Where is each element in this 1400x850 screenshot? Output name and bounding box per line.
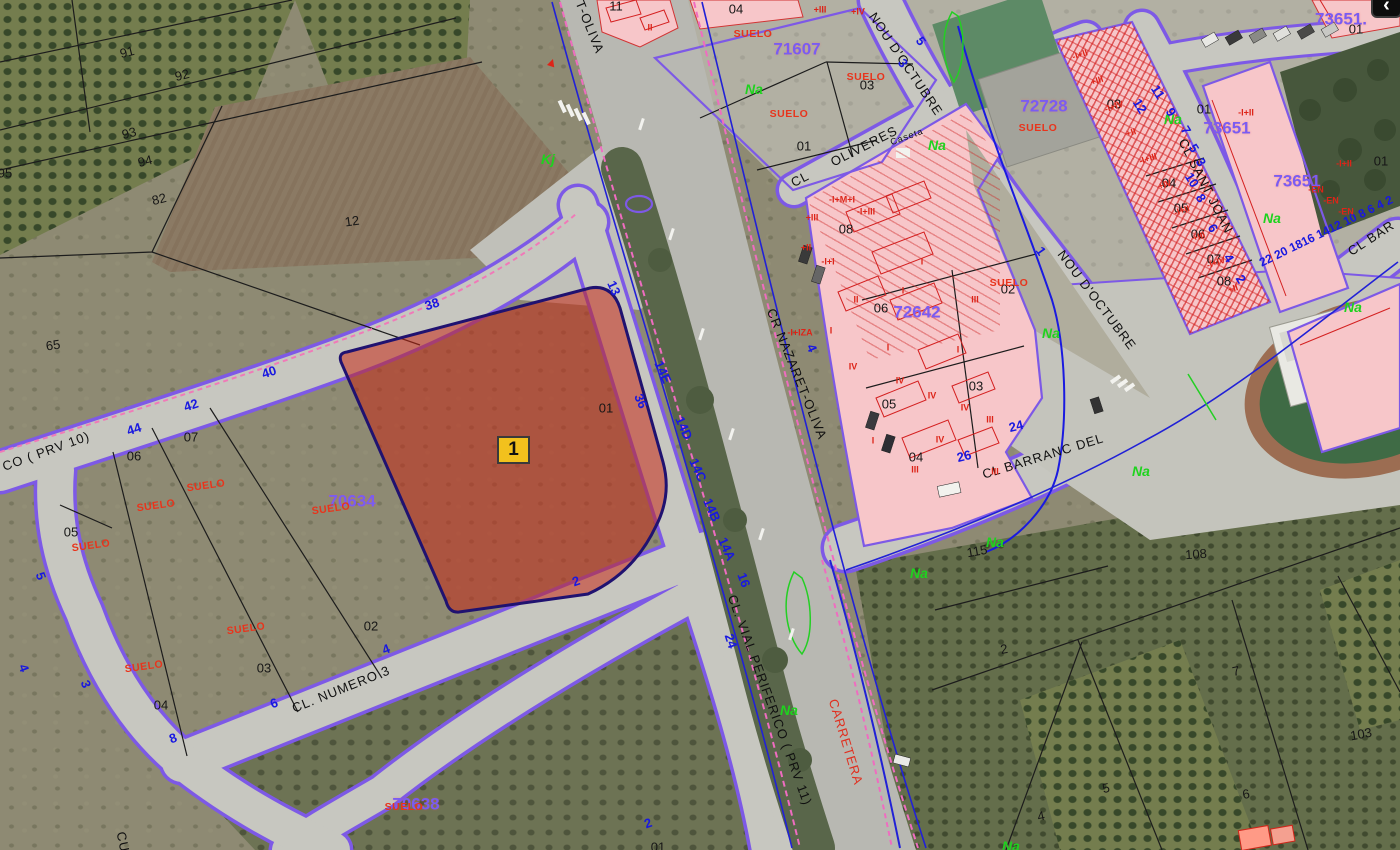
- parcel-label: 04: [1162, 177, 1176, 190]
- na-label: Na: [1344, 300, 1362, 314]
- street-label: CL: [789, 169, 811, 189]
- mark-label: +IV: [1157, 179, 1173, 192]
- zone-label: 70638: [392, 796, 439, 813]
- parcel-label: 03: [969, 380, 983, 393]
- house-label: 2: [1234, 272, 1249, 285]
- parcel-label: 06: [127, 450, 141, 463]
- parcel-label: 65: [45, 338, 61, 353]
- parcel-label: 01: [1197, 103, 1211, 116]
- house-label: 22 20 1816 1412 10 8 6 4 2: [1257, 193, 1394, 268]
- na-label: Na: [910, 566, 928, 580]
- parcel-label: 4: [1036, 809, 1046, 823]
- zone-label: 72642: [893, 304, 940, 321]
- parcel-label: 05: [64, 526, 78, 539]
- mark-label: I: [872, 437, 875, 446]
- street-label: CL SANT JOAN: [1176, 137, 1235, 236]
- suelo-label: SUELO: [1019, 123, 1058, 134]
- mark-label: -I+IV: [1103, 100, 1124, 115]
- street-label: CARRETERA: [827, 697, 866, 786]
- house-label: 5: [34, 570, 49, 581]
- mark-label: I: [887, 344, 890, 353]
- na-label: Na: [745, 82, 763, 96]
- parcel-label: 108: [1185, 547, 1208, 561]
- parcel-label: 93: [120, 125, 137, 141]
- mark-label: -I+IZA: [787, 329, 812, 338]
- zone-label: 70634: [328, 493, 375, 510]
- house-label: 14E: [652, 359, 673, 385]
- house-label: 10: [1183, 170, 1202, 189]
- zone-label: 72728: [1020, 98, 1067, 115]
- suelo-label: SUELO: [71, 538, 111, 554]
- mark-label: I: [957, 346, 960, 355]
- house-label: 4: [805, 342, 820, 354]
- house-label: 3: [896, 56, 911, 69]
- mark-label: -I+III: [1138, 152, 1158, 166]
- na-label: Na: [1263, 211, 1281, 225]
- mark-label: III: [986, 416, 994, 425]
- house-label: 4: [1222, 251, 1237, 264]
- parcel-label: 92: [173, 67, 190, 83]
- house-label: 9: [1164, 105, 1179, 118]
- mark-label: -I+II: [1071, 48, 1089, 61]
- parcel-label: 82: [150, 191, 167, 207]
- house-label: 36: [632, 392, 650, 411]
- zone-label: 73651.: [1315, 11, 1367, 28]
- house-label: 8: [167, 731, 178, 746]
- house-label: 12: [1131, 96, 1150, 115]
- suelo-label: SUELO: [136, 498, 176, 514]
- house-label: 5: [1187, 141, 1202, 154]
- street-label: CL. NUMERO 3: [290, 663, 392, 714]
- parcel-label: 04: [909, 451, 923, 464]
- parcel-label: 6: [1241, 787, 1250, 801]
- mark-label: +III: [814, 6, 827, 15]
- mark-label: III: [911, 466, 919, 475]
- house-label: 42: [182, 397, 200, 414]
- na-label: Kj: [541, 152, 555, 166]
- mark-label: III: [991, 468, 999, 477]
- street-label: CU: [114, 830, 131, 850]
- parcel-label: 07: [1207, 253, 1221, 266]
- parcel-label: 103: [1349, 726, 1373, 743]
- parcel-label: 95: [0, 167, 12, 180]
- mark-label: -I+II: [1336, 160, 1352, 169]
- house-label: 24: [1007, 418, 1024, 434]
- mark-label: I: [902, 287, 905, 296]
- street-label: CL BAR: [1345, 218, 1396, 257]
- house-label: 38: [423, 296, 441, 313]
- zone-label: 71607: [773, 41, 820, 58]
- na-label: Na: [1164, 112, 1182, 126]
- suelo-label: SUELO: [186, 478, 226, 494]
- mark-label: III: [971, 296, 979, 305]
- mark-label: -I+II: [1238, 109, 1254, 118]
- street-label: NOU D'OCTUBRE: [1055, 248, 1138, 352]
- suelo-label: SUELO: [770, 109, 809, 120]
- mark-label: I: [830, 327, 833, 336]
- parcel-label: 2: [999, 642, 1008, 656]
- mark-label: -I+II: [1173, 204, 1191, 217]
- mark-label: +IV: [851, 8, 865, 17]
- mark-label: IV: [849, 363, 858, 372]
- house-label: 2: [642, 816, 653, 831]
- na-label: Na: [986, 535, 1004, 549]
- mark-label: -I+III: [857, 208, 875, 217]
- parcel-label: 11: [609, 0, 623, 13]
- mark-label: -I+IV: [1205, 256, 1226, 271]
- mark-label: IV: [928, 392, 937, 401]
- mark-label: -EN: [1308, 186, 1324, 195]
- zone-label: 73651: [1203, 120, 1250, 137]
- suelo-label: SUELO: [124, 659, 164, 675]
- parcel-label: 7: [1231, 664, 1241, 678]
- mark-label: II: [853, 296, 858, 305]
- mark-label: +II: [1125, 127, 1138, 139]
- mark-label: +II: [801, 244, 811, 253]
- house-label: 14D: [673, 414, 695, 441]
- parcel-label: 08: [839, 223, 853, 236]
- house-label: 14C: [687, 456, 709, 483]
- mark-label: I: [921, 258, 924, 267]
- parcel-label: 94: [136, 153, 153, 169]
- parcel-label: 03: [257, 662, 271, 675]
- na-label: Na: [780, 703, 798, 717]
- suelo-label: SUELO: [385, 802, 424, 813]
- mark-label: +III: [1192, 231, 1207, 244]
- parcel-label: 91: [118, 44, 135, 60]
- house-label: 2: [570, 574, 581, 589]
- parcel-label: 03: [860, 79, 874, 92]
- parcel-label: 05: [882, 398, 896, 411]
- parcel-label: 01: [1374, 155, 1388, 168]
- house-label: 1: [1034, 244, 1049, 257]
- parcel-label: 02: [1001, 283, 1015, 296]
- parcel-label: 01: [599, 402, 613, 415]
- house-label: 3: [79, 678, 94, 689]
- suelo-label: SUELO: [734, 29, 773, 40]
- street-label: CL. VIAL PERIFERICO ( PRV 11): [726, 593, 815, 807]
- suelo-label: SUELO: [311, 501, 351, 517]
- house-label: 14A: [716, 535, 738, 562]
- parcel-label: 5: [1101, 781, 1111, 795]
- na-label: Na: [1132, 464, 1150, 478]
- selected-parcel-marker[interactable]: 1: [497, 436, 530, 464]
- mark-label: -EN: [1323, 197, 1339, 206]
- parcel-label: 08: [1217, 275, 1231, 288]
- mark-label: -EN: [1338, 208, 1354, 217]
- street-label: CL BARRANC DEL: [981, 431, 1106, 480]
- suelo-label: SUELO: [990, 278, 1029, 289]
- street-label: T-OLIVA: [574, 0, 607, 55]
- na-label: Na: [1042, 326, 1060, 340]
- mark-label: IV: [896, 377, 905, 386]
- street-label: NOU D'OCTUBRE: [867, 10, 945, 118]
- mark-label: -I+M+I: [829, 196, 855, 205]
- mark-label: IV: [936, 436, 945, 445]
- house-label: 11: [1149, 83, 1167, 102]
- zone-label: 73651: [1273, 173, 1320, 190]
- parcel-label: 115: [966, 543, 989, 559]
- house-label: 4: [17, 662, 32, 673]
- parcel-label: 04: [154, 699, 168, 712]
- street-label: CR NAZARET-OLIVA: [765, 307, 830, 442]
- house-label: 3: [1194, 155, 1209, 168]
- map-labels: T-OLIVACR NAZARET-OLIVANOU D'OCTUBRENOU …: [0, 0, 1400, 850]
- house-label: 6: [1206, 221, 1221, 234]
- mark-label: +III: [806, 214, 819, 223]
- street-label: CO ( PRV 10): [1, 429, 92, 473]
- mark-label: II: [647, 24, 652, 33]
- prev-image-button[interactable]: ‹: [1371, 0, 1400, 18]
- street-label: Caseta: [889, 127, 925, 147]
- house-label: 40: [260, 364, 278, 381]
- na-label: Na: [1002, 839, 1020, 850]
- parcel-label: 06: [874, 302, 888, 315]
- mark-label: -I+I: [821, 258, 834, 267]
- house-label: 13: [605, 279, 623, 298]
- mark-label: +II: [1227, 283, 1240, 295]
- parcel-label: 01: [1349, 23, 1363, 36]
- parcel-label: 07: [184, 431, 198, 444]
- parcel-label: 01: [651, 841, 665, 850]
- mark-label: +III: [1090, 75, 1105, 88]
- parcel-label: 05: [1174, 202, 1188, 215]
- house-label: 7: [1179, 123, 1194, 136]
- cadastral-map-viewer[interactable]: T-OLIVACR NAZARET-OLIVANOU D'OCTUBRENOU …: [0, 0, 1400, 850]
- mark-label: ▲: [544, 54, 560, 70]
- parcel-label: 01: [797, 140, 811, 153]
- na-label: Na: [928, 138, 946, 152]
- suelo-label: SUELO: [847, 72, 886, 83]
- house-label: 5: [914, 34, 929, 47]
- house-label: 6: [268, 696, 279, 711]
- parcel-label: 04: [729, 3, 743, 16]
- house-label: 14B: [701, 496, 723, 523]
- house-label: 8: [1194, 191, 1209, 204]
- house-label: 4: [380, 642, 391, 657]
- parcel-label: 12: [344, 214, 360, 229]
- suelo-label: SUELO: [226, 621, 266, 637]
- house-label: 24: [723, 632, 740, 650]
- house-label: 44: [125, 421, 143, 438]
- street-label: OLIVERES: [829, 124, 900, 169]
- house-label: 26: [955, 448, 972, 464]
- house-label: 16: [735, 571, 752, 589]
- parcel-label: 06: [1191, 228, 1205, 241]
- parcel-label: 03: [1107, 98, 1121, 111]
- mark-label: IV: [961, 404, 970, 413]
- parcel-label: 02: [364, 620, 378, 633]
